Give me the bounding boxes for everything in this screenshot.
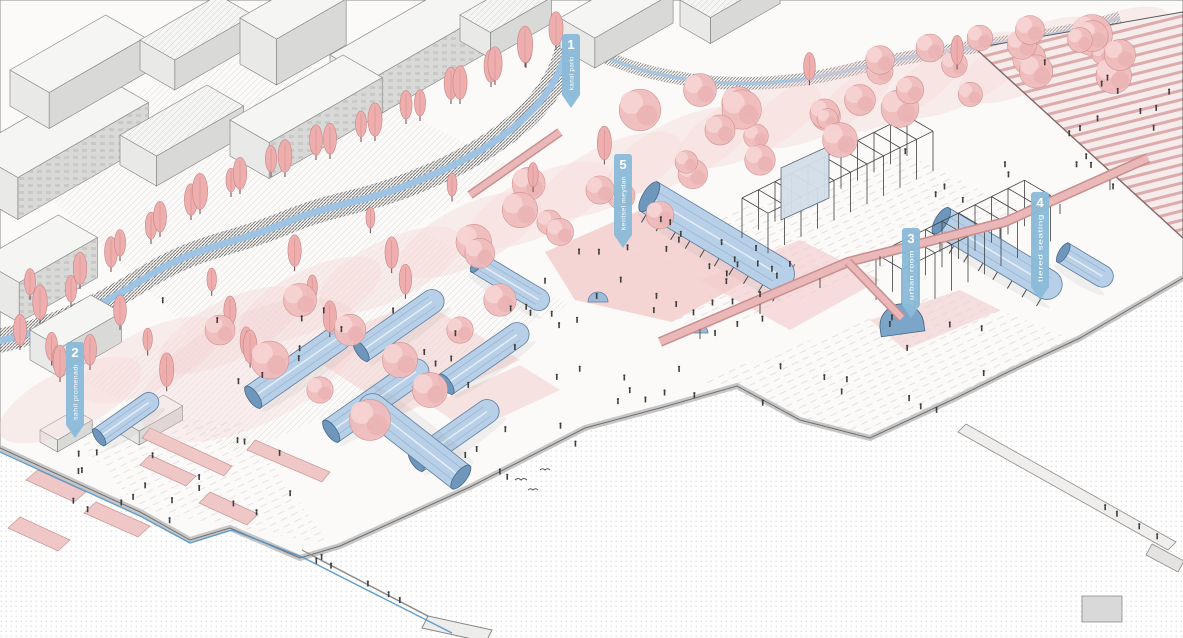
marker-flag-5: 5kentsel meydan [614,154,632,248]
person-figure [529,310,531,316]
person-figure [236,437,238,443]
person-figure [454,330,456,336]
person-figure [556,374,558,380]
person-figure [261,372,263,378]
person-figure [906,345,908,351]
person-figure [321,554,323,560]
person-figure [598,249,600,255]
person-figure [943,183,945,189]
marker-label: sahil promenadı [73,364,80,420]
person-figure [771,266,773,272]
person-figure [551,311,553,317]
tree-blossom [745,145,776,176]
tree-blossom [1104,39,1135,70]
tree-blossom [307,377,333,403]
tree-blossom [447,317,473,343]
person-figure [315,558,317,564]
tree-blossom [1015,15,1044,44]
person-figure [237,378,239,384]
tree-blossom [283,283,316,316]
tree-blossom [684,74,717,107]
person-figure [1044,59,1046,65]
person-figure [736,261,738,267]
person-figure [655,293,657,299]
tree-blossom [349,399,390,440]
person-figure [920,403,922,409]
person-figure [846,376,848,382]
person-figure [544,278,546,284]
person-figure [1112,183,1114,189]
person-figure [168,517,170,523]
person-figure [908,395,910,401]
person-figure [476,446,478,452]
person-figure [949,321,951,327]
tree-blossom [484,284,517,317]
person-figure [450,355,452,361]
masterplan-illustration: 1kanal parkı2sahil promenadı3urban room4… [0,0,1183,638]
person-figure [983,370,985,376]
tree-blossom [896,76,924,104]
person-figure [152,452,154,458]
person-figure [1156,533,1158,539]
person-figure [1117,88,1119,94]
person-figure [81,467,83,473]
person-figure [1096,115,1098,121]
person-figure [1138,523,1140,529]
person-figure [1106,74,1108,80]
person-figure [340,326,342,332]
person-figure [761,316,763,322]
person-figure [510,305,512,311]
person-figure [935,407,937,413]
person-figure [255,509,257,515]
person-figure [289,490,291,496]
tree-blossom [967,25,993,51]
person-figure [330,562,332,568]
person-figure [891,314,893,320]
person-figure [678,366,680,372]
marker-flag-3: 3urban room [902,228,920,318]
person-figure [72,498,74,504]
person-figure [789,261,791,267]
person-figure [675,301,677,307]
person-figure [243,438,245,444]
person-figure [776,273,778,279]
marker-number: 3 [907,231,914,246]
person-figure [644,396,646,402]
person-figure [1085,153,1087,159]
tree-blossom [705,115,735,145]
person-figure [711,299,713,305]
marker-number: 2 [71,345,78,360]
harbor-pedestal [1082,596,1122,622]
marker-flag-2: 2sahil promenadı [66,342,84,438]
person-figure [1068,130,1070,136]
person-figure [574,441,576,447]
person-figure [669,219,671,225]
marker-label: kentsel meydan [621,176,628,230]
person-figure [1155,105,1157,111]
tree-blossom [205,315,235,345]
person-figure [663,389,665,395]
person-figure [841,388,843,394]
person-figure [731,298,733,304]
person-figure [96,449,98,455]
person-figure [653,307,655,313]
person-figure [1075,161,1077,167]
person-figure [889,321,891,327]
person-figure [367,580,369,586]
person-figure [467,382,469,388]
person-figure [1139,108,1141,114]
tree-blossom [586,176,614,204]
person-figure [525,304,527,310]
person-figure [1104,504,1106,510]
person-figure [620,277,622,283]
person-figure [506,474,508,480]
person-figure [171,497,173,503]
person-figure [721,239,723,245]
marker-number: 1 [567,37,574,52]
person-figure [779,363,781,369]
person-figure [392,307,394,313]
tree-blossom [1068,28,1093,53]
person-figure [162,297,164,303]
person-figure [678,237,680,243]
person-figure [1168,89,1170,95]
person-figure [132,494,134,500]
person-figure [504,426,506,432]
person-figure [680,231,682,237]
person-figure [1079,125,1081,131]
tree-blossom [675,151,698,174]
tree-blossom [845,85,876,116]
person-figure [759,291,761,297]
tree-blossom [1019,55,1052,88]
person-figure [755,245,757,251]
person-figure [514,344,516,350]
marker-flag-1: 1kanal parkı [562,34,580,108]
tree-blossom [465,238,495,268]
person-figure [904,148,906,154]
person-figure [301,315,303,321]
person-figure [596,293,598,299]
person-figure [726,270,728,276]
person-figure [216,317,218,323]
person-figure [692,309,694,315]
person-figure [660,216,662,222]
marker-number: 5 [619,157,626,172]
person-figure [1007,171,1009,177]
person-figure [576,317,578,323]
person-figure [77,468,79,474]
tree-blossom [866,46,895,75]
person-figure [86,506,88,512]
tree-blossom [334,314,366,346]
tree-blossom [916,34,944,62]
tree-blossom [502,192,537,227]
marker-flag-4: 4tiered seating [1031,192,1049,300]
person-figure [762,400,764,406]
person-figure [464,452,466,458]
person-figure [725,278,727,284]
person-figure [962,197,964,203]
person-figure [757,260,759,266]
person-figure [559,423,561,429]
person-figure [558,322,560,328]
marker-label: tiered seating [1038,214,1045,282]
person-figure [734,256,736,262]
person-figure [78,451,80,457]
person-figure [665,246,667,252]
person-figure [1004,161,1006,167]
tree-blossom [823,123,858,158]
person-figure [198,485,200,491]
person-figure [434,360,436,366]
tree-blossom [546,218,573,245]
person-figure [120,499,122,505]
person-figure [623,374,625,380]
person-figure [693,392,695,398]
masterplan-canvas: 1kanal parkı2sahil promenadı3urban room4… [0,0,1183,638]
person-figure [714,330,716,336]
person-figure [298,355,300,361]
person-figure [629,387,631,393]
tree-blossom [382,342,417,377]
person-figure [579,366,581,372]
person-figure [278,450,280,456]
tree-blossom [412,372,447,407]
person-figure [578,248,580,254]
person-figure [1116,511,1118,517]
person-figure [626,244,628,250]
person-figure [736,321,738,327]
person-figure [198,474,200,480]
person-figure [298,345,300,351]
tree-blossom [619,89,661,131]
person-figure [617,398,619,404]
marker-number: 4 [1036,195,1044,210]
tree-blossom [958,82,982,106]
person-figure [323,307,325,313]
person-figure [1101,80,1103,86]
person-figure [423,349,425,355]
person-figure [144,482,146,488]
marker-label: kanal parkı [569,56,576,90]
person-figure [388,591,390,597]
person-figure [499,468,501,474]
person-figure [1153,125,1155,131]
person-figure [981,325,983,331]
person-figure [399,597,401,603]
person-figure [708,263,710,269]
person-figure [823,374,825,380]
person-figure [935,191,937,197]
marker-label: urban room [909,250,916,300]
person-figure [1090,162,1092,168]
person-figure [232,500,234,506]
tree-blossom [251,341,289,379]
